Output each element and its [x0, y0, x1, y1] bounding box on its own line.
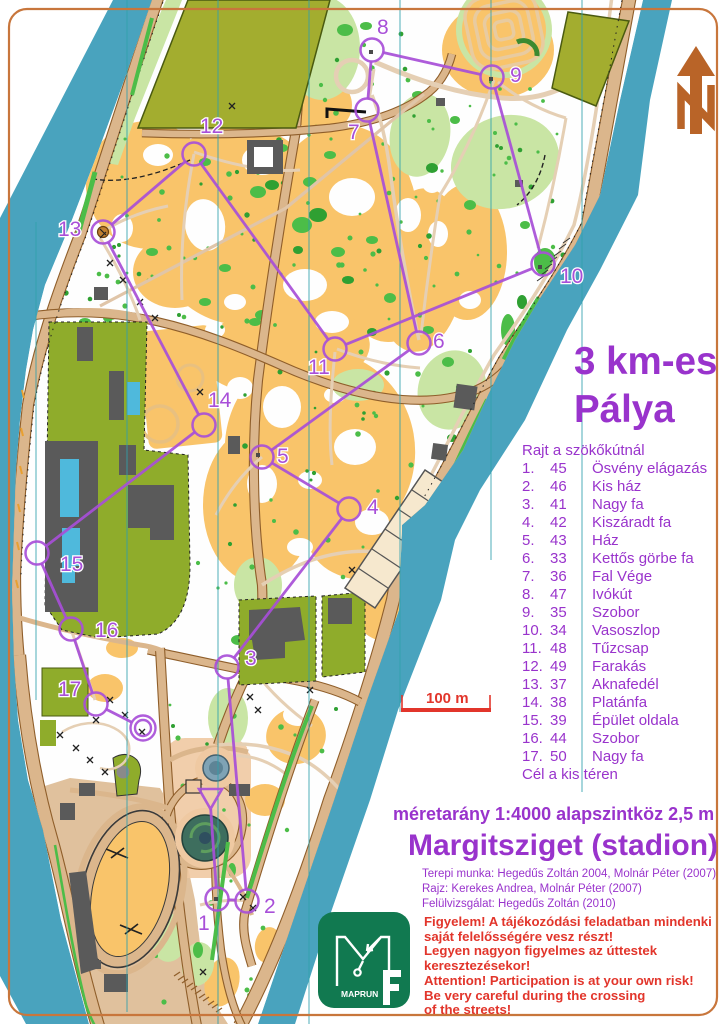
svg-text:6: 6 — [433, 330, 445, 353]
svg-text:7: 7 — [348, 121, 360, 144]
svg-text:16: 16 — [95, 619, 118, 642]
svg-text:12: 12 — [200, 115, 223, 138]
svg-text:8: 8 — [377, 16, 389, 39]
svg-text:9: 9 — [510, 64, 522, 87]
svg-text:17: 17 — [58, 678, 81, 701]
svg-text:10: 10 — [560, 265, 583, 288]
svg-text:MAPRUN: MAPRUN — [341, 989, 378, 999]
svg-text:13: 13 — [58, 218, 81, 241]
svg-text:2: 2 — [264, 895, 276, 918]
svg-text:14: 14 — [208, 389, 232, 412]
svg-text:1: 1 — [198, 912, 210, 935]
svg-text:5: 5 — [277, 445, 289, 468]
svg-text:4: 4 — [367, 496, 379, 519]
svg-text:15: 15 — [60, 553, 83, 576]
svg-text:3: 3 — [245, 647, 257, 670]
svg-text:11: 11 — [308, 356, 330, 379]
